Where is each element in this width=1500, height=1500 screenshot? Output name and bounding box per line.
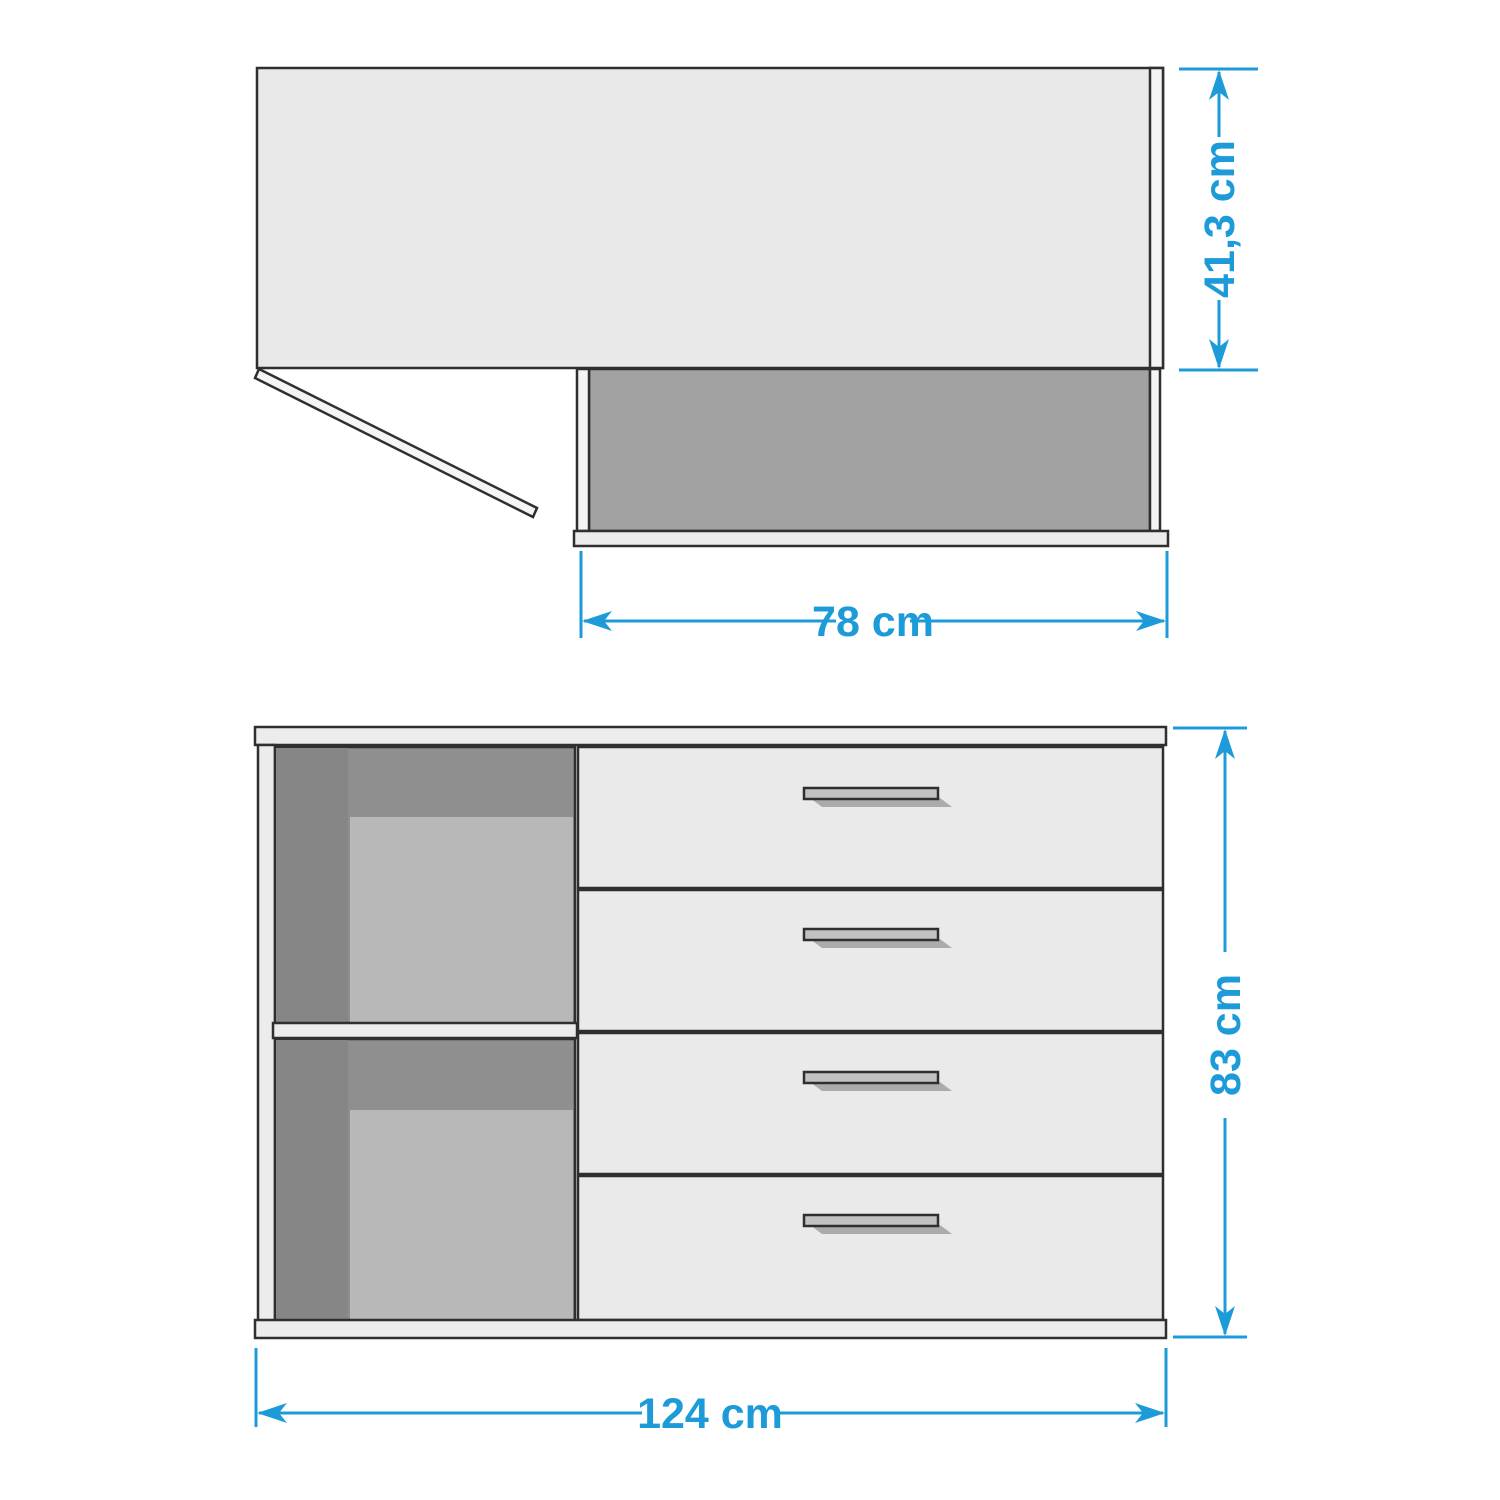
drawer-1 [578,747,1163,888]
drawer-2 [578,890,1163,1031]
top-view-width-dimension: 78 cm [581,551,1167,646]
drawer-4 [578,1176,1163,1320]
shelf-compartment-back-panel [350,817,573,1022]
height-dimension-label: 83 cm [1202,974,1250,1096]
dresser-plinth-top-view [574,531,1168,546]
front-view-height-dimension: 83 cm [1173,728,1250,1337]
width-dimension-label: 78 cm [812,598,934,646]
top-view [255,68,1168,546]
support-leg [255,369,537,517]
handle-bar [804,1215,938,1226]
handle-bar [804,1072,938,1083]
dresser-back-panel [589,369,1150,531]
drawer-3 [578,1033,1163,1174]
furniture-dimension-diagram: 41,3 cm 78 cm [0,0,1500,1500]
shelf-compartment-lower [275,1039,575,1320]
front-view [255,727,1166,1338]
shelf-compartment-side-shadow [276,1040,348,1319]
cabinet-plinth [255,1320,1166,1338]
drawer-handle-4 [804,1215,952,1234]
handle-bar [804,788,938,799]
cabinet-top-panel [255,727,1166,745]
drawer-handle-1 [804,788,952,807]
shelf-compartment-upper [275,747,575,1023]
handle-bar [804,929,938,940]
drawer-handle-2 [804,929,952,948]
shelf-divider [273,1023,577,1038]
desk-right-edge-strip [1150,68,1163,368]
shelf-compartment-side-shadow [276,748,348,1022]
front-view-width-dimension: 124 cm [256,1348,1166,1438]
dresser-right-edge-strip [1150,369,1160,531]
drawer-handle-3 [804,1072,952,1091]
top-view-depth-dimension: 41,3 cm [1179,69,1258,370]
width-dimension-label: 124 cm [637,1390,783,1438]
desk-surface [257,68,1163,368]
dresser-left-edge-strip [577,369,589,531]
shelf-compartment-back-panel [350,1110,573,1319]
depth-dimension-label: 41,3 cm [1196,140,1244,298]
